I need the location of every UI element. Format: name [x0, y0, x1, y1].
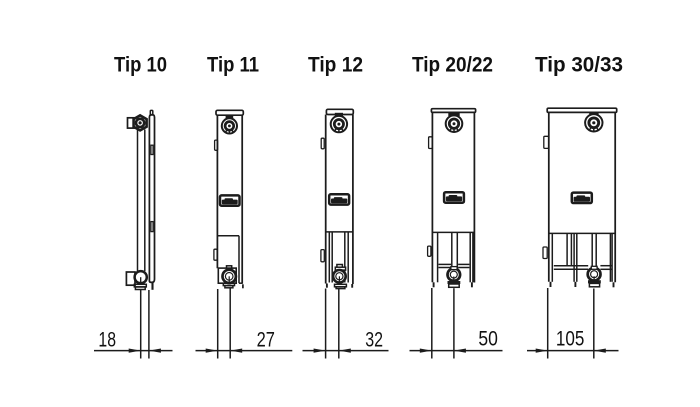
- svg-text:32: 32: [365, 328, 383, 351]
- svg-text:Tip 30/33: Tip 30/33: [535, 54, 623, 77]
- svg-text:105: 105: [556, 327, 585, 350]
- svg-text:27: 27: [257, 328, 275, 351]
- svg-text:Tip 10: Tip 10: [114, 54, 167, 77]
- svg-text:Tip 12: Tip 12: [308, 54, 363, 77]
- svg-text:Tip 11: Tip 11: [207, 54, 259, 77]
- svg-text:Tip 20/22: Tip 20/22: [412, 54, 493, 77]
- svg-text:50: 50: [478, 328, 498, 351]
- svg-text:18: 18: [98, 328, 116, 351]
